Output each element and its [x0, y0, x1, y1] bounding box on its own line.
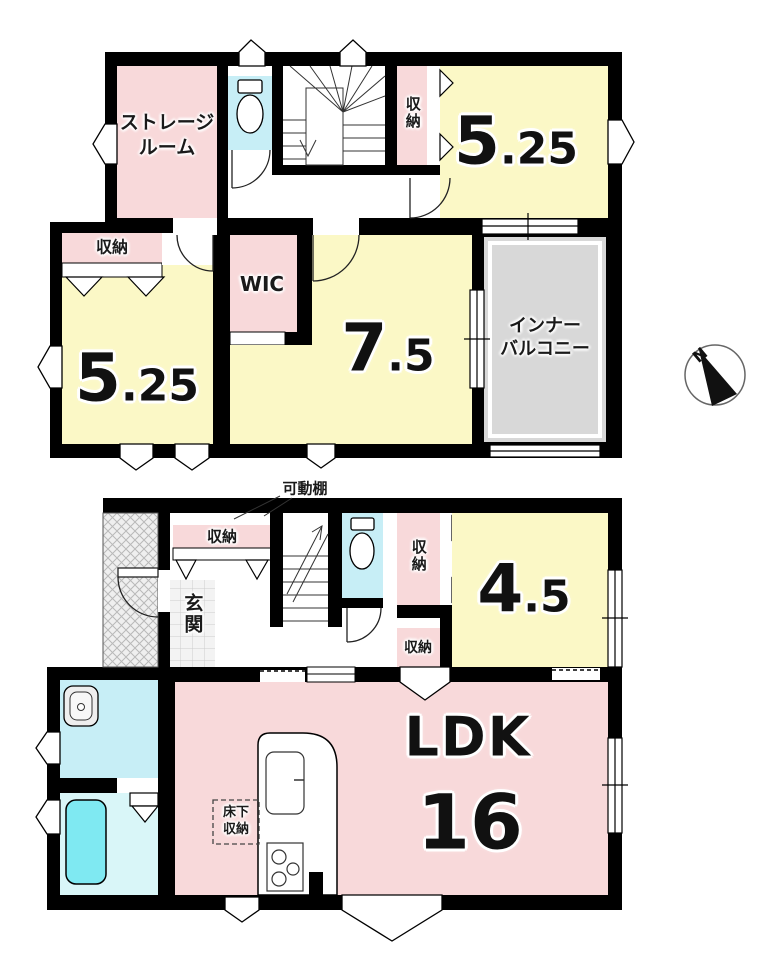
f2-closet-left-label: 収納 [96, 238, 128, 259]
f2-closet-top-label: 収納 [402, 96, 422, 130]
f1-toilet-icon [350, 518, 374, 569]
inner-balcony-label: インナー バルコニー [500, 315, 590, 362]
f2-room525a-dec: .25 [500, 124, 578, 175]
ldk-label: LDK [404, 706, 531, 769]
f2-toilet-icon [237, 80, 263, 133]
movable-shelf-label: 可動棚 [282, 479, 327, 499]
genkan-label: 玄関 [180, 593, 205, 635]
f1-mid-closet-front [440, 513, 452, 605]
f2-room525a-size: 5.25 [454, 103, 578, 180]
f1-room45-dec: .5 [523, 572, 570, 623]
f2-closet-top-front [427, 66, 440, 165]
ldk-size: 16 [417, 778, 523, 867]
f1-entry-closet-label: 収納 [207, 527, 237, 547]
f1-room45-int: 4 [477, 551, 523, 628]
f1-toilet-bottom-wall [342, 598, 383, 608]
f1-entry-closet-shelf [173, 548, 272, 560]
f2-toilet-exit [228, 150, 272, 175]
f1-front-door-gap [158, 570, 170, 612]
f2-room75-dec: .5 [387, 331, 434, 382]
f1-kitchen-counter [258, 733, 337, 895]
floorplan-drawing [0, 0, 782, 980]
f2-hall [228, 175, 440, 218]
f2-wic-front [230, 332, 285, 345]
f1-washbasin-icon [64, 686, 98, 726]
f1-room45-size: 4.5 [477, 551, 570, 628]
f2-room525b-dec: .25 [121, 361, 199, 412]
f1-porch [103, 513, 158, 667]
floor-storage-label: 床下 収納 [223, 805, 249, 839]
f2-room525b-int: 5 [75, 340, 121, 417]
f2-closet-left-shelf [62, 263, 162, 277]
f2-room525a-int: 5 [454, 103, 500, 180]
f2-room75-size: 7.5 [341, 310, 434, 387]
floorplan-page: ストレージ ルーム 収納 5.25 収納 5.25 WIC 7.5 インナー バ… [0, 0, 782, 980]
storage-room-label: ストレージ ルーム [120, 110, 215, 159]
f2-room75-int: 7 [341, 310, 387, 387]
f1-mid-closet-label: 収納 [408, 539, 428, 573]
f1-stairs-wall-right [328, 513, 342, 627]
f2-room525b-size: 5.25 [75, 340, 199, 417]
wic-label: WIC [240, 271, 284, 297]
f1-bathtub-icon [66, 800, 106, 884]
f1-low-closet-label: 収納 [404, 639, 432, 657]
f1-stairs-wall-left [270, 513, 283, 627]
f1-ldk-room [175, 682, 608, 895]
f1-mid-closet-gap [397, 618, 440, 628]
f1-wash-bath-gap [117, 778, 158, 793]
